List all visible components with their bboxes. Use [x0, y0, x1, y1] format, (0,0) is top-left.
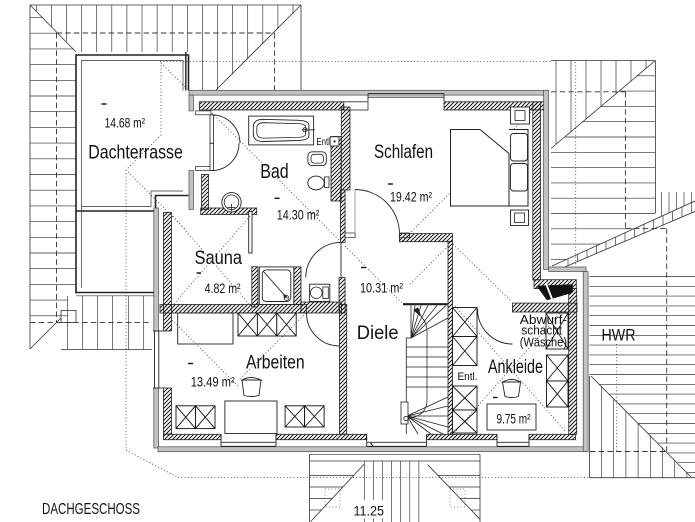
svg-text:9.75 m²: 9.75 m²	[497, 412, 531, 427]
svg-text:Bad: Bad	[260, 161, 289, 183]
svg-text:4.82 m²: 4.82 m²	[205, 281, 241, 296]
svg-text:Sauna: Sauna	[195, 247, 243, 269]
svg-text:11.25: 11.25	[354, 503, 385, 519]
svg-text:Entl.: Entl.	[458, 371, 478, 383]
svg-text:Diele: Diele	[357, 322, 399, 344]
svg-text:14.30 m²: 14.30 m²	[277, 208, 320, 223]
svg-text:Schlafen: Schlafen	[374, 141, 433, 163]
svg-text:(Wäsche): (Wäsche)	[520, 335, 567, 350]
svg-text:10.31 m²: 10.31 m²	[360, 281, 403, 296]
svg-text:DACHGESCHOSS: DACHGESCHOSS	[42, 501, 140, 518]
svg-text:Arbeiten: Arbeiten	[246, 351, 305, 373]
svg-text:Entl: Entl	[316, 137, 330, 148]
svg-text:HWR: HWR	[602, 327, 636, 345]
svg-text:14.68 m²: 14.68 m²	[105, 115, 146, 130]
svg-text:Ankleide: Ankleide	[488, 356, 543, 378]
svg-text:19.42 m²: 19.42 m²	[390, 190, 432, 205]
svg-text:Dachterrasse: Dachterrasse	[88, 142, 183, 164]
